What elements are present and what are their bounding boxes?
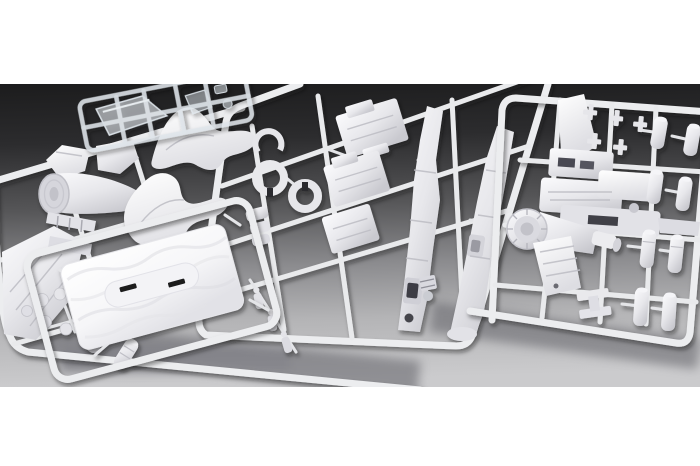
- kit-photo: [0, 0, 700, 466]
- bottom-white-band: [0, 387, 700, 466]
- photo-frame: [0, 0, 700, 466]
- top-white-band: [0, 0, 700, 84]
